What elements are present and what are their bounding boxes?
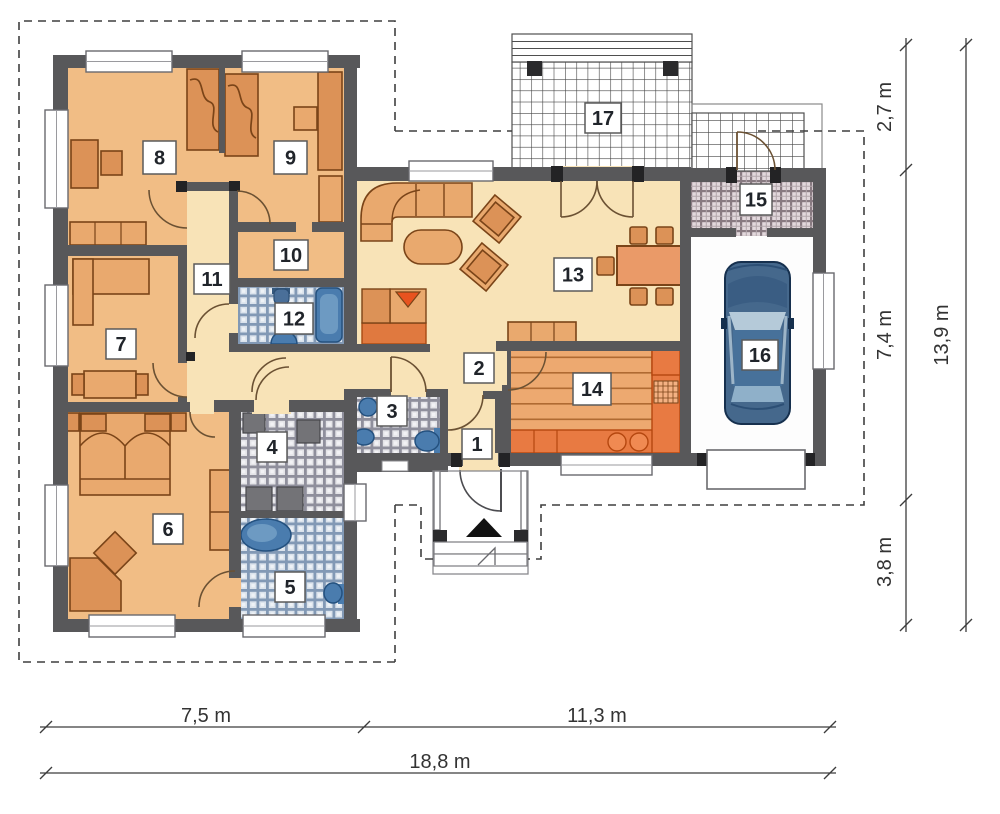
- svg-text:11,3 m: 11,3 m: [567, 705, 627, 727]
- svg-text:2,7 m: 2,7 m: [874, 82, 896, 132]
- svg-text:5: 5: [284, 577, 295, 599]
- svg-text:1: 1: [471, 434, 482, 456]
- svg-text:9: 9: [285, 148, 296, 170]
- svg-text:16: 16: [749, 345, 771, 367]
- svg-text:7,5 m: 7,5 m: [181, 705, 231, 727]
- svg-text:8: 8: [154, 148, 165, 170]
- svg-text:7,4 m: 7,4 m: [874, 310, 896, 360]
- svg-text:3,8 m: 3,8 m: [874, 537, 896, 587]
- svg-text:6: 6: [162, 519, 173, 541]
- svg-text:14: 14: [581, 379, 604, 401]
- svg-text:13: 13: [562, 265, 584, 287]
- svg-text:4: 4: [266, 437, 278, 459]
- svg-text:15: 15: [745, 190, 767, 212]
- svg-text:3: 3: [386, 401, 397, 423]
- svg-text:10: 10: [280, 245, 302, 267]
- svg-text:12: 12: [283, 309, 305, 331]
- svg-text:13,9 m: 13,9 m: [931, 304, 953, 365]
- svg-text:17: 17: [592, 108, 614, 130]
- svg-text:18,8 m: 18,8 m: [409, 751, 470, 773]
- svg-text:2: 2: [473, 358, 484, 380]
- svg-text:11: 11: [201, 269, 222, 291]
- svg-text:7: 7: [115, 334, 126, 356]
